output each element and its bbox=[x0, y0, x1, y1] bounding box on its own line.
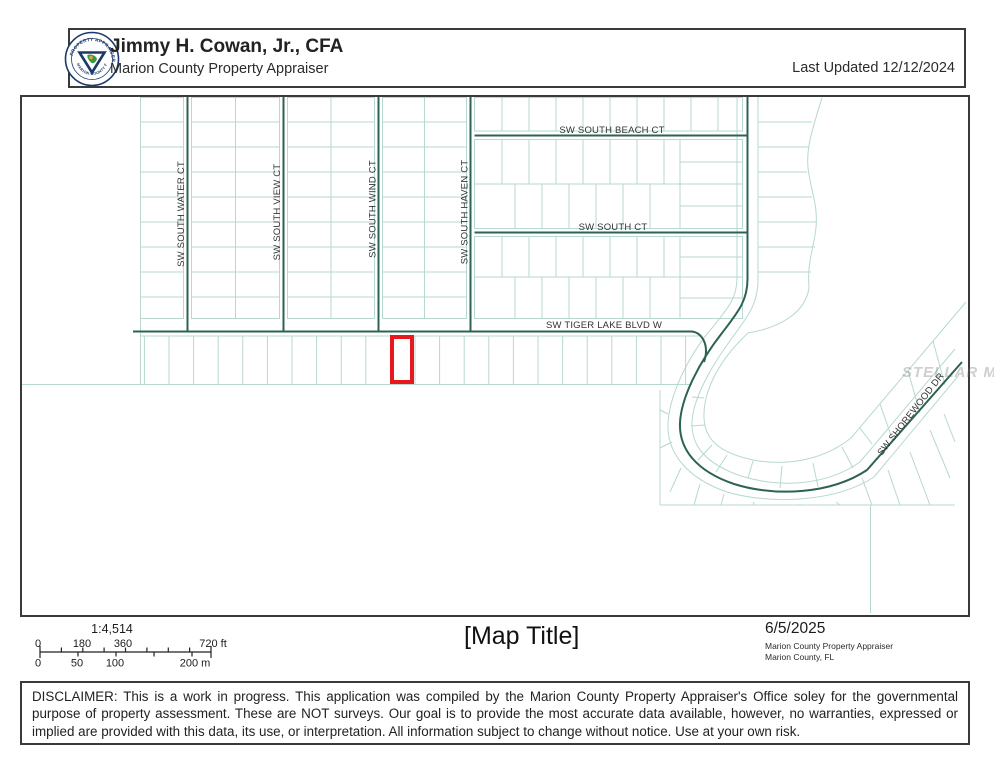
scale-ratio: 1:4,514 bbox=[91, 622, 133, 636]
map-date: 6/5/2025 bbox=[765, 620, 975, 638]
scale-m-0: 0 bbox=[35, 658, 41, 670]
map-agency-location: Marion County, FL bbox=[765, 652, 975, 663]
map-credits: 6/5/2025 Marion County Property Appraise… bbox=[765, 620, 975, 663]
label-sw-tiger-lake-blvd: SW TIGER LAKE BLVD W bbox=[546, 320, 662, 331]
scale-ft-180: 180 bbox=[73, 638, 91, 650]
map-agency: Marion County Property Appraiser Marion … bbox=[765, 641, 975, 663]
label-sw-south-beach-ct: SW SOUTH BEACH CT bbox=[559, 125, 664, 136]
last-updated-label: Last Updated 12/12/2024 bbox=[792, 60, 955, 76]
logo-orange-dot bbox=[89, 56, 93, 60]
scale-m-50: 50 bbox=[71, 658, 83, 670]
parcel-map-svg: SW SOUTH WATER CT SW SOUTH VIEW CT SW SO… bbox=[22, 97, 968, 615]
stellar-mls-watermark: STELLAR MLS bbox=[902, 364, 994, 386]
header: PROPERTY APPRAISER MARION COUNTY FLORIDA… bbox=[68, 28, 966, 88]
map-title: [Map Title] bbox=[464, 622, 579, 651]
scale-m-200: 200 m bbox=[180, 658, 211, 670]
label-sw-south-view-ct: SW SOUTH VIEW CT bbox=[272, 164, 283, 261]
appraiser-office: Marion County Property Appraiser bbox=[110, 61, 328, 77]
map-canvas[interactable]: SW SOUTH WATER CT SW SOUTH VIEW CT SW SO… bbox=[20, 95, 970, 617]
appraiser-name: Jimmy H. Cowan, Jr., CFA bbox=[110, 36, 343, 58]
property-appraiser-map-page: PROPERTY APPRAISER MARION COUNTY FLORIDA… bbox=[0, 0, 994, 768]
label-sw-south-wind-ct: SW SOUTH WIND CT bbox=[368, 160, 379, 258]
disclaimer-text: DISCLAIMER: This is a work in progress. … bbox=[20, 681, 970, 745]
street-lines bbox=[133, 97, 962, 492]
street-sw-shorewood-dr bbox=[680, 97, 962, 492]
scale-bar: 1:4,514 0 180 360 720 ft 0 50 100 200 m bbox=[10, 618, 260, 672]
scale-ft-360: 360 bbox=[114, 638, 132, 650]
street-labels: SW SOUTH WATER CT SW SOUTH VIEW CT SW SO… bbox=[176, 125, 947, 458]
parcel-lines bbox=[22, 97, 966, 613]
selected-parcel-highlight[interactable] bbox=[392, 337, 412, 382]
label-sw-south-ct: SW SOUTH CT bbox=[579, 222, 648, 233]
scale-ft-720: 720 ft bbox=[199, 638, 227, 650]
map-agency-name: Marion County Property Appraiser bbox=[765, 641, 975, 652]
label-sw-south-haven-ct: SW SOUTH HAVEN CT bbox=[460, 160, 471, 265]
scale-bar-ticks bbox=[40, 646, 211, 658]
label-sw-south-water-ct: SW SOUTH WATER CT bbox=[176, 161, 187, 267]
scale-m-100: 100 bbox=[106, 658, 124, 670]
